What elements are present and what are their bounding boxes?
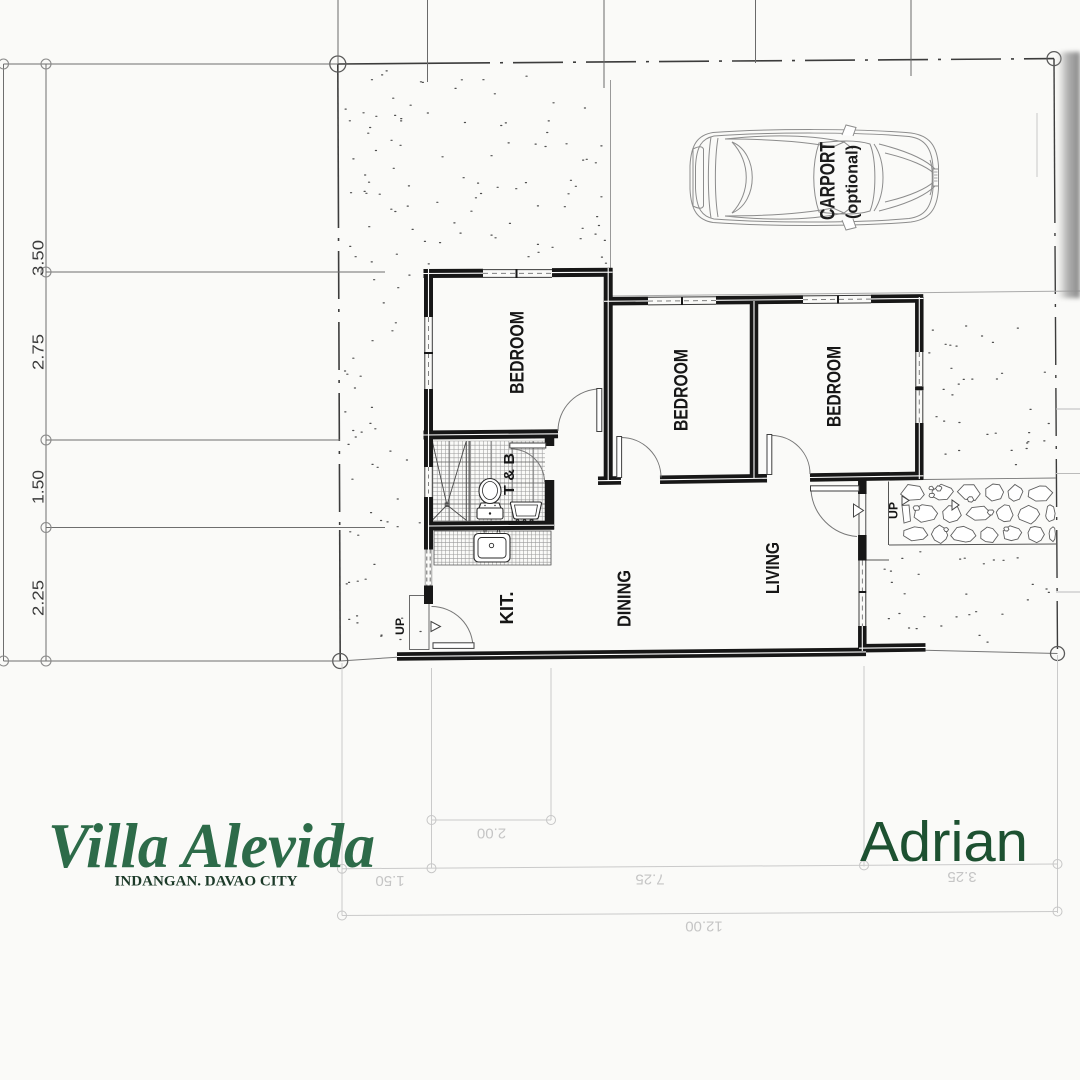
svg-text:7.25: 7.25 (635, 871, 664, 888)
svg-text:UP: UP (395, 618, 407, 635)
svg-text:BEDROOM: BEDROOM (508, 311, 529, 394)
svg-text:Adrian: Adrian (860, 810, 1028, 874)
svg-text:Villa Alevida: Villa Alevida (48, 811, 375, 881)
svg-text:LIVING: LIVING (763, 542, 783, 594)
svg-text:DINING: DINING (615, 570, 635, 627)
svg-text:3.50: 3.50 (31, 240, 48, 276)
svg-text:BEDROOM: BEDROOM (672, 349, 693, 431)
svg-text:2.75: 2.75 (31, 334, 48, 370)
svg-text:KIT.: KIT. (497, 592, 517, 625)
svg-text:UP: UP (889, 502, 901, 519)
svg-text:INDANGAN. DAVAO CITY: INDANGAN. DAVAO CITY (115, 874, 298, 890)
svg-text:T & B: T & B (501, 453, 518, 495)
svg-text:(optional): (optional) (843, 145, 862, 219)
svg-text:12.00: 12.00 (685, 918, 723, 935)
svg-text:CARPORT: CARPORT (817, 142, 840, 220)
svg-text:1.50: 1.50 (31, 470, 48, 504)
svg-text:2.25: 2.25 (31, 580, 48, 616)
svg-text:1.50: 1.50 (375, 872, 404, 889)
svg-text:2.00: 2.00 (477, 825, 506, 842)
svg-text:BEDROOM: BEDROOM (825, 346, 846, 427)
